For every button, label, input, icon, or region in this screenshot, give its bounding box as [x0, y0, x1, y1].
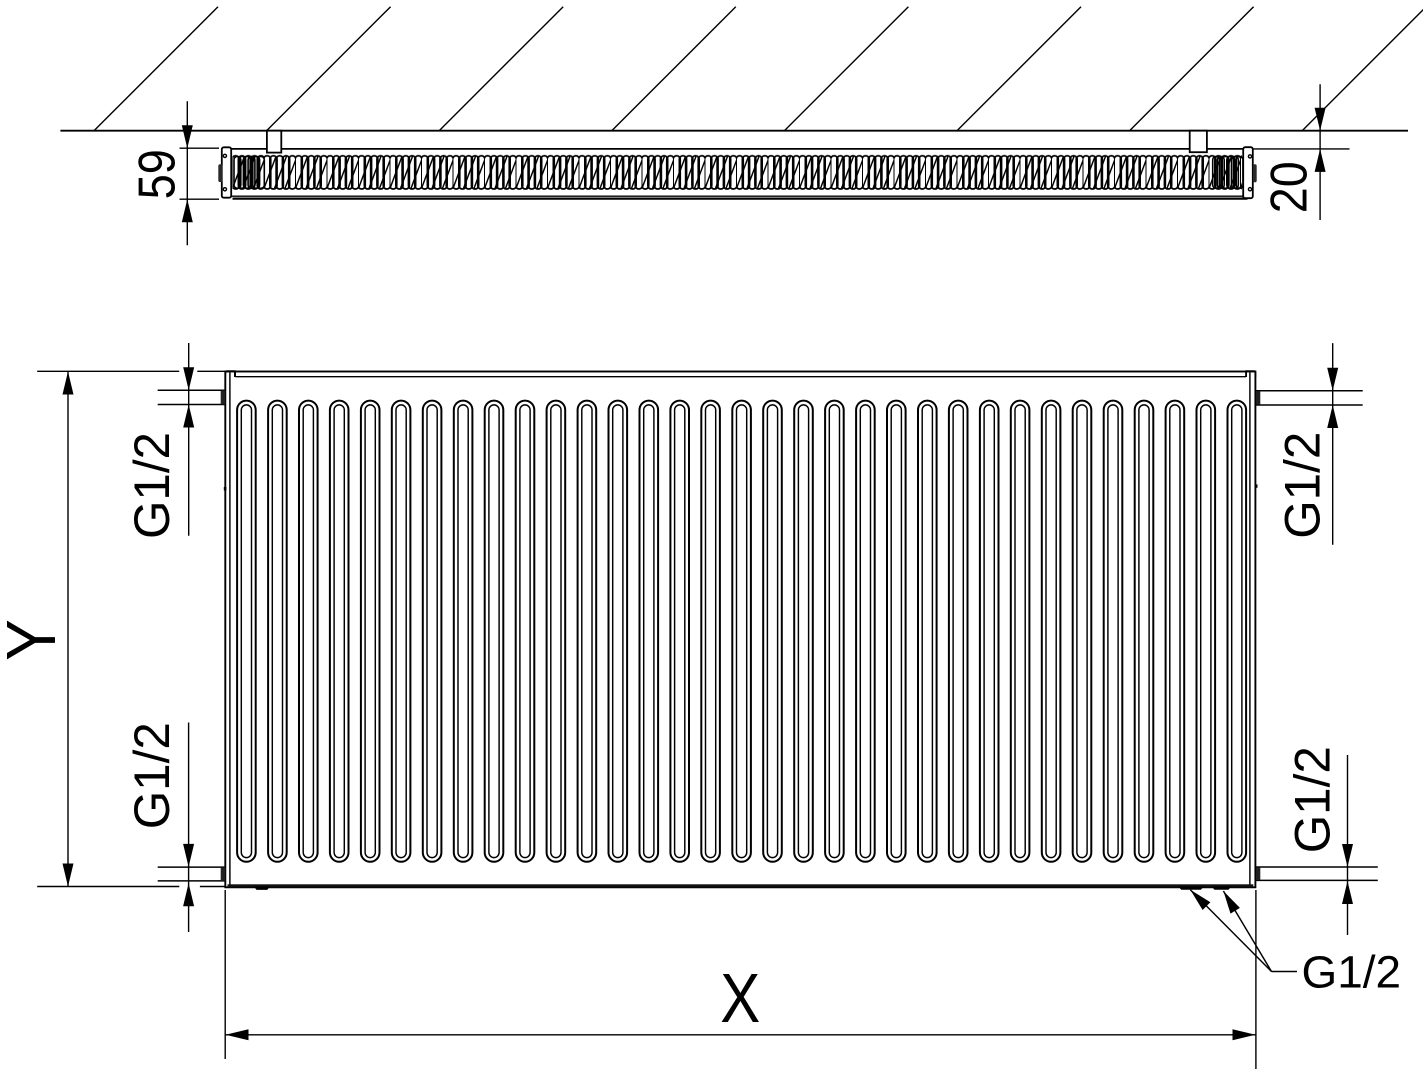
- svg-text:G1/2: G1/2: [1302, 947, 1402, 998]
- svg-text:59: 59: [128, 149, 186, 199]
- svg-text:20: 20: [1260, 161, 1318, 213]
- svg-text:G1/2: G1/2: [124, 722, 180, 829]
- svg-text:G1/2: G1/2: [124, 432, 180, 539]
- svg-text:G1/2: G1/2: [1274, 432, 1330, 539]
- svg-text:X: X: [720, 959, 760, 1037]
- svg-text:G1/2: G1/2: [1284, 746, 1340, 853]
- svg-text:Y: Y: [0, 619, 70, 661]
